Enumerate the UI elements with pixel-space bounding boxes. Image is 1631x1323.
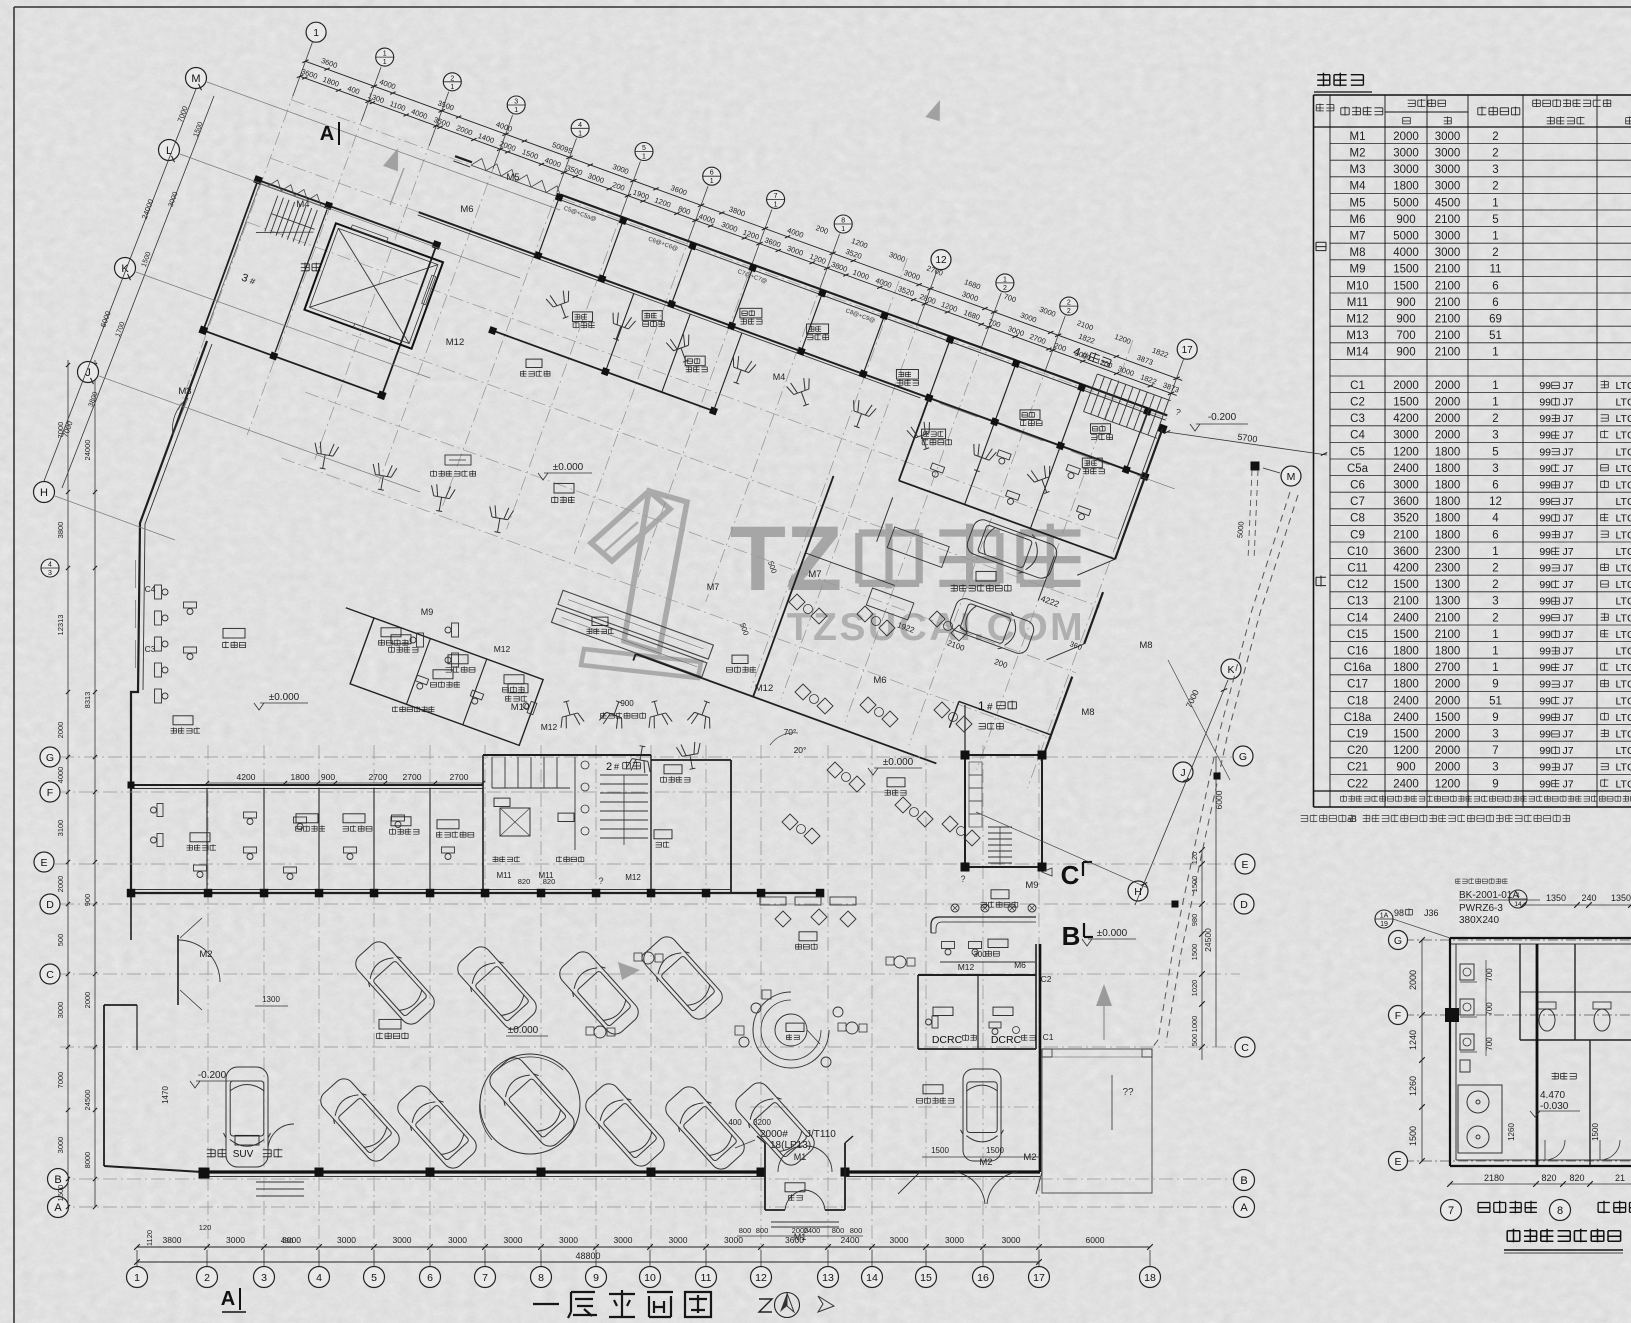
- svg-text:6: 6: [710, 170, 714, 177]
- svg-text:3000: 3000: [226, 1235, 245, 1245]
- svg-text:LTC: LTC: [1615, 745, 1631, 757]
- svg-text:900: 900: [321, 772, 335, 782]
- svg-text:3: 3: [1492, 164, 1498, 176]
- svg-text:1500: 1500: [1393, 280, 1419, 292]
- svg-text:-0.030: -0.030: [1540, 1101, 1569, 1112]
- svg-text:J7: J7: [1562, 762, 1573, 774]
- svg-text:LTC: LTC: [1615, 563, 1631, 575]
- svg-text:3000: 3000: [56, 1137, 65, 1154]
- svg-text:M14: M14: [1346, 347, 1369, 359]
- svg-text:2100: 2100: [1435, 330, 1461, 342]
- svg-text:17: 17: [1182, 345, 1194, 356]
- svg-text:1: 1: [1492, 397, 1498, 409]
- svg-text:1000: 1000: [1190, 1016, 1199, 1033]
- svg-text:6: 6: [1492, 480, 1498, 492]
- svg-text:LTC: LTC: [1615, 546, 1631, 558]
- svg-text:M6: M6: [460, 204, 473, 215]
- svg-text:2: 2: [1492, 413, 1498, 425]
- svg-text:2000: 2000: [1435, 430, 1461, 442]
- svg-text:1: 1: [1492, 197, 1498, 209]
- svg-text:3000: 3000: [1393, 430, 1419, 442]
- svg-text:900: 900: [1396, 214, 1415, 226]
- svg-text:C11: C11: [1347, 563, 1367, 575]
- svg-text:±0.000: ±0.000: [1097, 928, 1128, 939]
- svg-text:M: M: [191, 73, 200, 85]
- svg-text:2700: 2700: [450, 772, 469, 782]
- svg-text:500: 500: [1190, 1034, 1199, 1047]
- svg-text:2: 2: [606, 761, 612, 773]
- svg-text:5: 5: [1492, 446, 1498, 458]
- svg-text:12313: 12313: [56, 615, 65, 636]
- svg-text:3000: 3000: [724, 1235, 743, 1245]
- svg-text:J7: J7: [1562, 513, 1573, 525]
- svg-text:3000: 3000: [1393, 480, 1419, 492]
- svg-text:aB: aB: [1347, 815, 1357, 824]
- svg-text:2: 2: [450, 75, 454, 82]
- svg-text:3800: 3800: [56, 522, 65, 539]
- svg-text:8: 8: [1557, 1205, 1563, 1217]
- svg-text:M12: M12: [1346, 314, 1368, 326]
- svg-text:5000: 5000: [1393, 231, 1419, 243]
- svg-text:C14: C14: [1347, 612, 1369, 624]
- svg-text:J7: J7: [1562, 480, 1573, 492]
- svg-text:C5: C5: [1350, 446, 1365, 458]
- svg-text:LTC: LTC: [1615, 413, 1631, 425]
- svg-text:3000: 3000: [1435, 164, 1461, 176]
- svg-text:16: 16: [977, 1272, 989, 1284]
- svg-text:3: 3: [1492, 463, 1498, 475]
- svg-text:M4: M4: [773, 372, 786, 382]
- svg-text:2100: 2100: [1393, 529, 1419, 541]
- svg-text:J7: J7: [1562, 629, 1573, 641]
- svg-text:2000: 2000: [1408, 970, 1418, 990]
- svg-text:4200: 4200: [237, 772, 256, 782]
- svg-text:2100: 2100: [1435, 280, 1461, 292]
- svg-text:LTC: LTC: [1615, 612, 1631, 624]
- svg-text:1500: 1500: [1393, 264, 1419, 276]
- svg-text:99: 99: [1539, 745, 1551, 757]
- svg-text:M9: M9: [1350, 264, 1366, 276]
- svg-text:6: 6: [427, 1272, 433, 1284]
- svg-text:5: 5: [1492, 214, 1498, 226]
- svg-text:13: 13: [822, 1272, 834, 1284]
- svg-text:1: 1: [134, 1272, 140, 1284]
- svg-text:1500: 1500: [1393, 579, 1419, 591]
- svg-text:6: 6: [1492, 297, 1498, 309]
- svg-text:99: 99: [1539, 513, 1551, 525]
- svg-text:M: M: [1287, 471, 1296, 483]
- svg-text:9: 9: [1492, 679, 1498, 691]
- svg-text:5: 5: [642, 145, 646, 152]
- svg-text:F: F: [47, 787, 53, 799]
- svg-text:C18a: C18a: [1344, 712, 1372, 724]
- svg-text:2000: 2000: [1435, 397, 1461, 409]
- svg-text:2: 2: [1492, 148, 1498, 160]
- svg-text:4200: 4200: [1393, 563, 1419, 575]
- svg-text:J/T110: J/T110: [806, 1129, 836, 1140]
- svg-text:3600: 3600: [1393, 496, 1419, 508]
- svg-text:900: 900: [1396, 762, 1415, 774]
- svg-text:1: 1: [1492, 231, 1498, 243]
- svg-text:LTC: LTC: [1615, 430, 1631, 442]
- svg-text:-0.200: -0.200: [1208, 412, 1237, 423]
- svg-text:2: 2: [1067, 300, 1071, 307]
- svg-text:2: 2: [1492, 131, 1498, 143]
- svg-text:LTC: LTC: [1615, 513, 1631, 525]
- svg-text:2000: 2000: [1435, 413, 1461, 425]
- svg-text:51: 51: [1489, 695, 1502, 707]
- svg-text:4.470: 4.470: [1540, 1090, 1565, 1101]
- svg-text:70°: 70°: [784, 727, 797, 737]
- svg-text:3: 3: [1492, 762, 1498, 774]
- svg-text:1500: 1500: [1591, 1123, 1600, 1141]
- svg-text:M2: M2: [979, 1157, 992, 1168]
- svg-text:M12: M12: [958, 962, 975, 972]
- svg-text:DCRC: DCRC: [991, 1034, 1022, 1046]
- svg-text:M9: M9: [421, 607, 434, 617]
- svg-text:J7: J7: [1562, 646, 1573, 658]
- svg-text:1: 1: [450, 84, 454, 91]
- svg-text:C19: C19: [1347, 729, 1368, 741]
- svg-text:1800: 1800: [1393, 181, 1419, 193]
- svg-text:1: 1: [1516, 892, 1520, 899]
- svg-text:2400: 2400: [1393, 695, 1419, 707]
- svg-text:900: 900: [620, 699, 634, 708]
- svg-text:99: 99: [1539, 563, 1551, 575]
- svg-text:820: 820: [1569, 1173, 1584, 1183]
- svg-text:2400: 2400: [1393, 778, 1419, 790]
- svg-text:M2: M2: [1350, 148, 1366, 160]
- svg-text:3000: 3000: [669, 1235, 688, 1245]
- svg-text:±0.000: ±0.000: [508, 1025, 539, 1036]
- svg-text:L: L: [166, 145, 172, 157]
- svg-text:C: C: [1241, 1042, 1249, 1054]
- svg-text:4200: 4200: [1393, 413, 1419, 425]
- svg-text:C15: C15: [1347, 629, 1368, 641]
- svg-text:5000: 5000: [1235, 521, 1245, 538]
- svg-text:SUV: SUV: [233, 1149, 254, 1160]
- svg-text:1800: 1800: [1393, 679, 1419, 691]
- svg-text:J7: J7: [1562, 695, 1573, 707]
- svg-text:M3: M3: [1350, 164, 1366, 176]
- svg-text:4: 4: [316, 1272, 322, 1284]
- svg-text:?: ?: [960, 874, 965, 884]
- svg-text:±0.000: ±0.000: [553, 462, 584, 473]
- svg-text:M10: M10: [511, 702, 529, 713]
- svg-text:3000: 3000: [1435, 131, 1461, 143]
- svg-text:C22: C22: [1347, 778, 1368, 790]
- svg-text:900: 900: [83, 894, 92, 907]
- svg-text:15: 15: [920, 1272, 932, 1284]
- svg-text:J7: J7: [1562, 446, 1573, 458]
- svg-text:99: 99: [1539, 679, 1551, 691]
- svg-text:99: 99: [1539, 579, 1551, 591]
- svg-text:99: 99: [1539, 695, 1551, 707]
- svg-text:M5: M5: [506, 172, 519, 183]
- svg-text:E: E: [1394, 1156, 1401, 1168]
- svg-text:2000: 2000: [83, 992, 92, 1009]
- svg-text:C6: C6: [1350, 480, 1365, 492]
- svg-text:4000: 4000: [56, 767, 65, 784]
- svg-text:21: 21: [1615, 1173, 1625, 1183]
- svg-text:LTC: LTC: [1615, 380, 1631, 392]
- svg-text:2400: 2400: [1393, 712, 1419, 724]
- svg-text:J7: J7: [1562, 745, 1573, 757]
- svg-text:1: 1: [383, 59, 387, 66]
- svg-text:24500: 24500: [83, 1090, 92, 1111]
- svg-text:#: #: [987, 702, 993, 713]
- svg-text:PWRZ6-3: PWRZ6-3: [1459, 903, 1503, 914]
- svg-text:2: 2: [1492, 247, 1498, 259]
- svg-text:99: 99: [1539, 446, 1551, 458]
- svg-text:99: 99: [1539, 463, 1551, 475]
- svg-text:2: 2: [204, 1272, 210, 1284]
- svg-text:3: 3: [261, 1272, 267, 1284]
- svg-text:9: 9: [1492, 778, 1498, 790]
- svg-text:2000: 2000: [1435, 762, 1461, 774]
- svg-text:C3: C3: [145, 644, 156, 654]
- svg-text:1350: 1350: [1611, 893, 1631, 903]
- svg-text:M1: M1: [1350, 131, 1366, 143]
- svg-text:1: 1: [1492, 646, 1498, 658]
- svg-text:1: 1: [1492, 662, 1498, 674]
- svg-text:2000: 2000: [56, 876, 65, 893]
- svg-text:3000: 3000: [1002, 1235, 1021, 1245]
- svg-text:12: 12: [755, 1272, 767, 1284]
- svg-text:2: 2: [1492, 612, 1498, 624]
- svg-text:3600: 3600: [1393, 546, 1419, 558]
- svg-text:M4: M4: [1350, 181, 1367, 193]
- svg-text:C7: C7: [1350, 496, 1365, 508]
- svg-text:2400: 2400: [841, 1235, 860, 1245]
- svg-text:C8: C8: [1350, 513, 1365, 525]
- svg-text:7: 7: [1448, 1205, 1454, 1217]
- svg-text:240: 240: [1581, 893, 1596, 903]
- svg-text:1500: 1500: [1393, 629, 1419, 641]
- svg-text:24000: 24000: [83, 440, 92, 461]
- svg-text:F: F: [1395, 1010, 1401, 1022]
- svg-text:C17: C17: [1347, 679, 1368, 691]
- svg-text:3: 3: [1492, 430, 1498, 442]
- svg-text:M10: M10: [1346, 280, 1368, 292]
- svg-text:C9: C9: [1350, 529, 1365, 541]
- svg-text:M11: M11: [497, 871, 513, 880]
- svg-text:M9: M9: [1025, 880, 1038, 891]
- svg-text:3000: 3000: [1393, 148, 1419, 160]
- svg-text:800: 800: [850, 1226, 863, 1235]
- svg-text:M12: M12: [625, 873, 641, 882]
- svg-text:LTC: LTC: [1615, 397, 1631, 409]
- svg-text:3000: 3000: [1435, 247, 1461, 259]
- svg-text:380X240: 380X240: [1459, 915, 1499, 926]
- svg-text:9: 9: [593, 1272, 599, 1284]
- svg-text:1470: 1470: [161, 1086, 170, 1104]
- svg-text:M12: M12: [541, 722, 558, 732]
- svg-text:12: 12: [935, 255, 947, 266]
- svg-text:8000: 8000: [83, 1152, 92, 1169]
- svg-text:820: 820: [1541, 1173, 1556, 1183]
- svg-text:2700: 2700: [403, 772, 422, 782]
- svg-text:99: 99: [1539, 729, 1551, 741]
- svg-text:99: 99: [1539, 529, 1551, 541]
- svg-text:M11: M11: [539, 871, 555, 880]
- svg-text:17: 17: [1033, 1272, 1045, 1284]
- svg-text:2000: 2000: [1435, 679, 1461, 691]
- svg-text:2100: 2100: [1435, 629, 1461, 641]
- svg-text:8: 8: [841, 218, 845, 225]
- svg-text:A: A: [1240, 1202, 1248, 1214]
- svg-text:2300: 2300: [1435, 563, 1461, 575]
- svg-text:98: 98: [1394, 908, 1404, 918]
- svg-text:99: 99: [1539, 480, 1551, 492]
- svg-text:1: 1: [1492, 546, 1498, 558]
- svg-text:1240: 1240: [1408, 1030, 1418, 1050]
- svg-text:300: 300: [973, 950, 987, 959]
- svg-text:B: B: [1240, 1175, 1247, 1187]
- svg-text:900: 900: [1396, 347, 1415, 359]
- svg-text:6: 6: [1492, 280, 1498, 292]
- svg-text:3520: 3520: [1393, 513, 1419, 525]
- svg-text:2: 2: [1067, 308, 1071, 315]
- svg-text:M8: M8: [1081, 707, 1094, 718]
- svg-text:9: 9: [1492, 712, 1498, 724]
- svg-text:2100: 2100: [1435, 612, 1461, 624]
- svg-text:900: 900: [1396, 314, 1415, 326]
- svg-text:980: 980: [1190, 914, 1199, 927]
- svg-text:2100: 2100: [1435, 297, 1461, 309]
- svg-text:C21: C21: [1347, 762, 1368, 774]
- svg-text:M7: M7: [1350, 231, 1366, 243]
- svg-text:1020: 1020: [1190, 980, 1199, 997]
- svg-text:1: 1: [383, 51, 387, 58]
- svg-text:1: 1: [578, 130, 582, 137]
- svg-text:3: 3: [514, 99, 518, 106]
- svg-text:2700: 2700: [369, 772, 388, 782]
- svg-text:19: 19: [1380, 921, 1388, 928]
- svg-text:2100: 2100: [1435, 347, 1461, 359]
- svg-text:3000: 3000: [282, 1235, 301, 1245]
- svg-text:C16a: C16a: [1344, 662, 1372, 674]
- svg-text:2400: 2400: [1393, 463, 1419, 475]
- svg-text:3200: 3200: [753, 1118, 771, 1127]
- svg-text:11: 11: [701, 1272, 712, 1284]
- svg-text:C4: C4: [145, 584, 156, 594]
- svg-text:LTC: LTC: [1615, 579, 1631, 591]
- svg-text:1500: 1500: [1408, 1126, 1418, 1146]
- svg-text:?: ?: [598, 876, 603, 886]
- svg-text:±0.000: ±0.000: [269, 692, 300, 703]
- svg-text:J7: J7: [1562, 778, 1573, 790]
- svg-text:M12: M12: [755, 683, 773, 694]
- svg-text:C5a: C5a: [1347, 463, 1369, 475]
- svg-text:2000: 2000: [56, 722, 65, 739]
- svg-text:99: 99: [1539, 762, 1551, 774]
- svg-text:2100: 2100: [1435, 264, 1461, 276]
- svg-text:120: 120: [199, 1223, 212, 1232]
- svg-text:7000: 7000: [56, 1072, 65, 1089]
- svg-text:J7: J7: [1562, 729, 1573, 741]
- svg-text:3000: 3000: [448, 1235, 467, 1245]
- svg-text:2000: 2000: [1435, 695, 1461, 707]
- svg-text:LTC: LTC: [1615, 446, 1631, 458]
- svg-text:2100: 2100: [1435, 314, 1461, 326]
- svg-text:J7: J7: [1562, 579, 1573, 591]
- svg-text:1260: 1260: [1507, 1123, 1516, 1141]
- svg-text:6000: 6000: [1214, 790, 1224, 809]
- svg-text:1: 1: [642, 154, 646, 161]
- svg-text:99: 99: [1539, 496, 1551, 508]
- svg-text:J7: J7: [1562, 546, 1573, 558]
- svg-text:4500: 4500: [1435, 197, 1461, 209]
- svg-text:1: 1: [1492, 347, 1498, 359]
- svg-text:2000: 2000: [1435, 745, 1461, 757]
- svg-text:99: 99: [1539, 646, 1551, 658]
- svg-text:J7: J7: [1562, 712, 1573, 724]
- svg-text:TZ: TZ: [730, 508, 842, 610]
- svg-text:20°: 20°: [794, 745, 807, 755]
- svg-text:1800: 1800: [1435, 513, 1461, 525]
- svg-text:3000: 3000: [890, 1235, 909, 1245]
- svg-text:99: 99: [1539, 397, 1551, 409]
- svg-text:1: 1: [841, 226, 845, 233]
- svg-text:J7: J7: [1562, 380, 1573, 392]
- svg-text:99: 99: [1539, 430, 1551, 442]
- svg-text:C2: C2: [1041, 974, 1052, 984]
- svg-text:3100: 3100: [56, 820, 65, 837]
- svg-text:11: 11: [1490, 264, 1502, 276]
- svg-text:700: 700: [1396, 330, 1415, 342]
- svg-text:1A: 1A: [1380, 913, 1389, 920]
- svg-text:??: ??: [1122, 1087, 1134, 1098]
- svg-text:DCRC: DCRC: [932, 1034, 963, 1046]
- svg-text:LTC: LTC: [1615, 729, 1631, 741]
- svg-text:A: A: [320, 123, 334, 145]
- svg-text:C: C: [46, 969, 54, 981]
- svg-text:A: A: [221, 1288, 235, 1310]
- svg-text:2: 2: [1492, 579, 1498, 591]
- svg-text:1300: 1300: [1435, 596, 1461, 608]
- svg-text:800: 800: [832, 1226, 845, 1235]
- svg-text:5000: 5000: [1393, 197, 1419, 209]
- svg-text:J7: J7: [1562, 496, 1573, 508]
- svg-text:2000: 2000: [1435, 729, 1461, 741]
- svg-text:M6: M6: [1350, 214, 1366, 226]
- svg-text:3800: 3800: [163, 1235, 182, 1245]
- svg-text:M2: M2: [199, 949, 212, 960]
- svg-text:99: 99: [1539, 413, 1551, 425]
- svg-text:#: #: [614, 762, 619, 772]
- svg-text:3000: 3000: [56, 1002, 65, 1019]
- svg-text:G: G: [1394, 935, 1402, 947]
- svg-text:C10: C10: [1347, 546, 1368, 558]
- svg-text:10: 10: [644, 1272, 656, 1284]
- svg-text:C18: C18: [1347, 695, 1368, 707]
- svg-text:J7: J7: [1562, 413, 1573, 425]
- svg-text:1500: 1500: [986, 1146, 1004, 1155]
- svg-text:C1: C1: [1043, 1032, 1054, 1042]
- svg-text:69: 69: [1489, 314, 1502, 326]
- svg-text:1: 1: [514, 107, 518, 114]
- svg-text:LTC: LTC: [1615, 529, 1631, 541]
- svg-text:LTC: LTC: [1615, 662, 1631, 674]
- svg-text:1800: 1800: [291, 772, 310, 782]
- svg-text:M11: M11: [1347, 297, 1369, 309]
- svg-text:99: 99: [1539, 380, 1551, 392]
- svg-text:7: 7: [482, 1272, 488, 1284]
- svg-text:1500: 1500: [931, 1146, 949, 1155]
- svg-text:±0.000: ±0.000: [883, 757, 914, 768]
- svg-text:800: 800: [756, 1226, 769, 1235]
